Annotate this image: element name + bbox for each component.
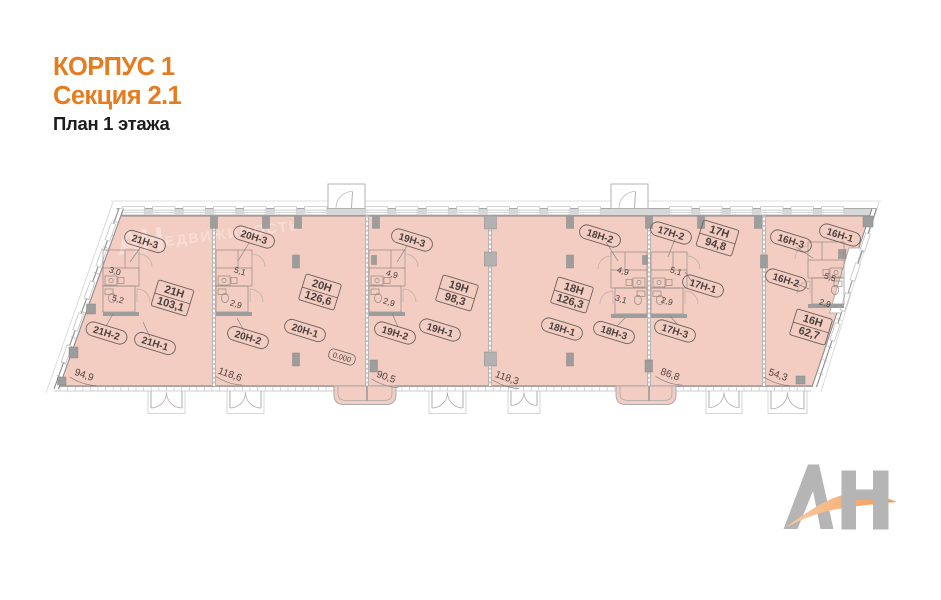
- svg-text:КОРПУС 1: КОРПУС 1: [53, 53, 175, 81]
- svg-text:План 1 этажа: План 1 этажа: [53, 113, 170, 134]
- svg-text:Секция 2.1: Секция 2.1: [53, 82, 182, 110]
